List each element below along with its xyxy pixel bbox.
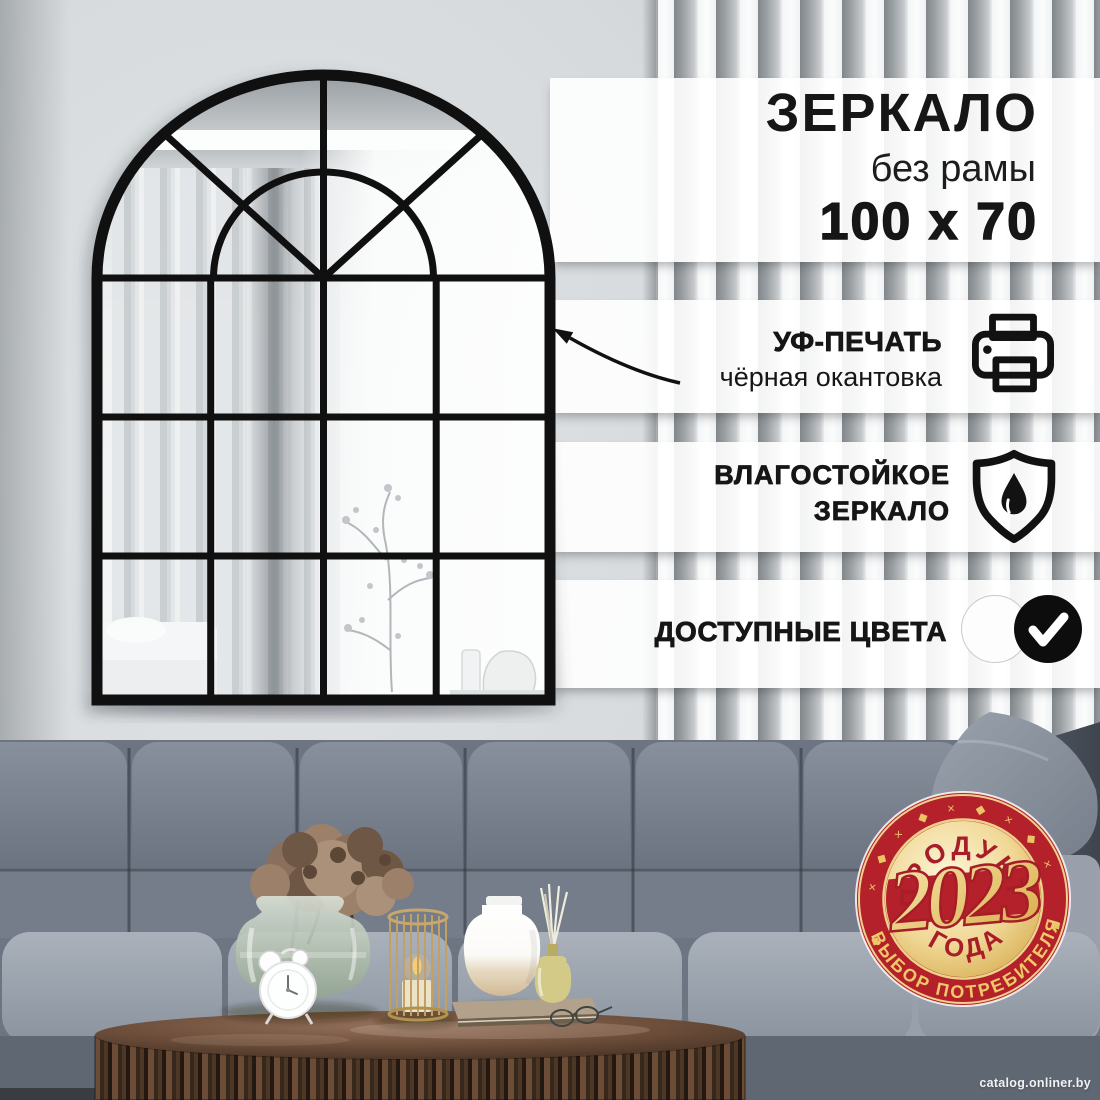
- feature-band-uv-print: УФ-ПЕЧАТЬ чёрная окантовка: [550, 300, 1100, 413]
- title-band: ЗЕРКАЛО без рамы 100 x 70: [550, 78, 1100, 262]
- feature-colors-title: ДОСТУПНЫЕ ЦВЕТА: [655, 616, 947, 648]
- product-image: ЗЕРКАЛО без рамы 100 x 70 УФ-ПЕЧАТЬ чёрн…: [0, 0, 1100, 1100]
- printer-icon: [970, 312, 1056, 394]
- shield-drop-icon: [966, 446, 1062, 548]
- product-title: ЗЕРКАЛО: [766, 86, 1038, 140]
- product-size: 100 x 70: [820, 196, 1038, 248]
- feature-uv-title: УФ-ПЕЧАТЬ: [773, 326, 942, 358]
- color-swatch-black: [1014, 595, 1082, 663]
- check-icon: [1025, 609, 1071, 649]
- product-subtitle: без рамы: [871, 150, 1036, 188]
- feature-uv-subtitle: чёрная окантовка: [720, 362, 942, 393]
- feature-waterproof-line2: ЗЕРКАЛО: [814, 496, 950, 527]
- watermark: catalog.onliner.by: [979, 1076, 1091, 1090]
- feature-waterproof-line1: ВЛАГОСТОЙКОЕ: [714, 460, 950, 491]
- feature-band-waterproof: ВЛАГОСТОЙКОЕ ЗЕРКАЛО: [550, 442, 1100, 552]
- feature-band-colors: ДОСТУПНЫЕ ЦВЕТА: [550, 580, 1100, 688]
